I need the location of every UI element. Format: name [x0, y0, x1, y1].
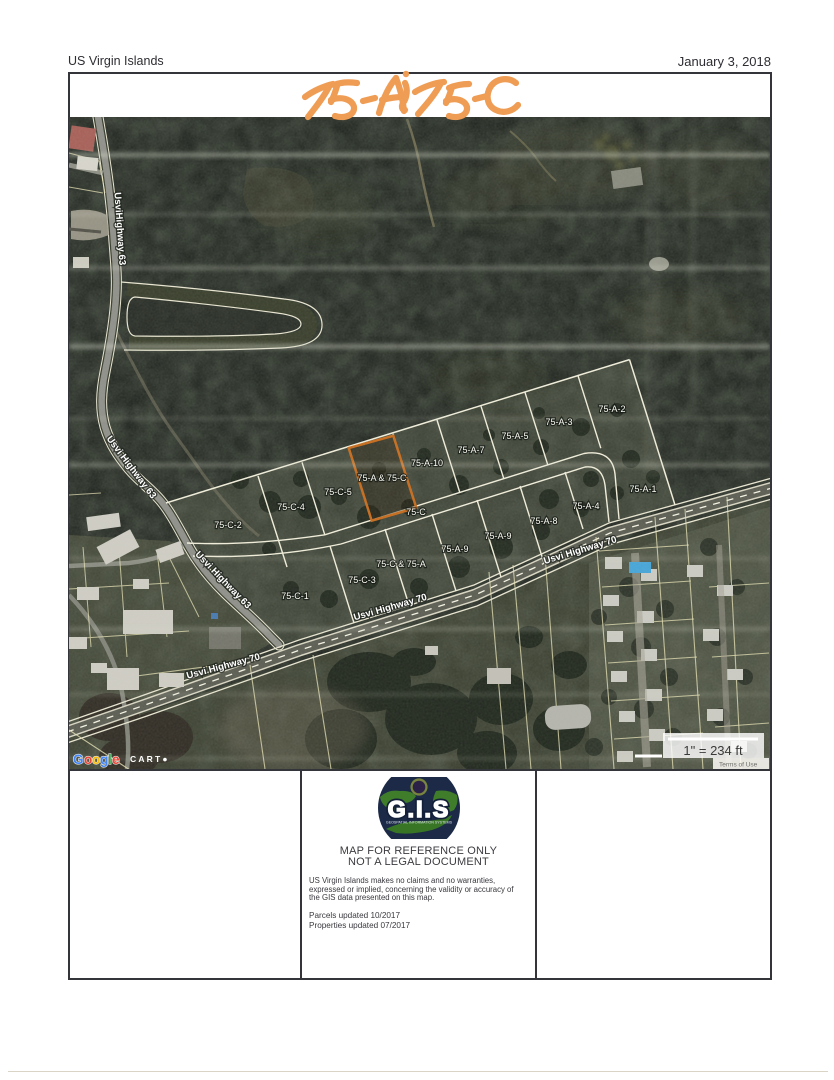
svg-text:75-A-3: 75-A-3	[545, 417, 572, 427]
svg-text:75-A-7: 75-A-7	[457, 445, 484, 455]
svg-text:e: e	[112, 752, 120, 767]
svg-text:75-C-5: 75-C-5	[324, 487, 352, 497]
svg-text:75-C-3: 75-C-3	[348, 575, 376, 585]
svg-text:75-A-9: 75-A-9	[484, 531, 511, 541]
svg-text:75-A-9: 75-A-9	[441, 544, 468, 554]
svg-text:75-A-10: 75-A-10	[411, 458, 443, 468]
svg-text:o: o	[92, 752, 100, 767]
svg-text:GEOSPATIAL INFORMATION SYSTEMS: GEOSPATIAL INFORMATION SYSTEMS	[386, 821, 453, 825]
svg-text:75-C-1: 75-C-1	[281, 591, 309, 601]
svg-text:g: g	[100, 752, 108, 767]
svg-text:75-A-8: 75-A-8	[530, 516, 557, 526]
svg-text:G.I.S: G.I.S	[388, 796, 450, 822]
svg-text:75-A-2: 75-A-2	[598, 404, 625, 414]
svg-text:75-A-5: 75-A-5	[501, 431, 528, 441]
svg-text:75-A-4: 75-A-4	[572, 501, 599, 511]
svg-text:75-C-2: 75-C-2	[214, 520, 242, 530]
svg-text:75-A-1: 75-A-1	[629, 484, 656, 494]
svg-text:CART●: CART●	[130, 754, 170, 764]
svg-text:Terms of Use: Terms of Use	[719, 762, 758, 769]
svg-text:75-C & 75-A: 75-C & 75-A	[376, 559, 426, 569]
svg-text:75-C-4: 75-C-4	[277, 502, 305, 512]
svg-text:75-A & 75-C: 75-A & 75-C	[357, 473, 407, 483]
svg-text:75-C: 75-C	[406, 507, 426, 517]
svg-text:o: o	[84, 752, 92, 767]
svg-text:G: G	[73, 752, 84, 767]
svg-text:1" = 234 ft: 1" = 234 ft	[683, 743, 743, 758]
